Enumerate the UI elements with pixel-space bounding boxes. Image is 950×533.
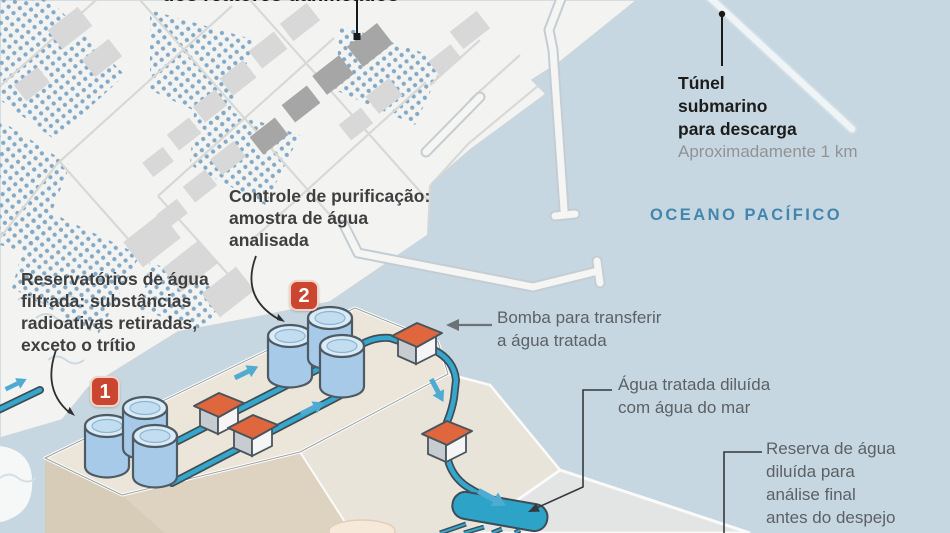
reactor-pointer-dot bbox=[354, 33, 361, 40]
tunnel-pointer-dot bbox=[719, 11, 725, 17]
step-1-badge: 1 bbox=[90, 376, 120, 407]
step-2-badge: 2 bbox=[289, 280, 319, 311]
infographic-canvas: dos reatores danificados Controle de pur… bbox=[0, 0, 950, 533]
scene-illustration bbox=[0, 0, 950, 533]
tank-icon bbox=[320, 335, 364, 398]
tank-icon bbox=[268, 325, 312, 388]
tank-icon bbox=[133, 425, 177, 488]
